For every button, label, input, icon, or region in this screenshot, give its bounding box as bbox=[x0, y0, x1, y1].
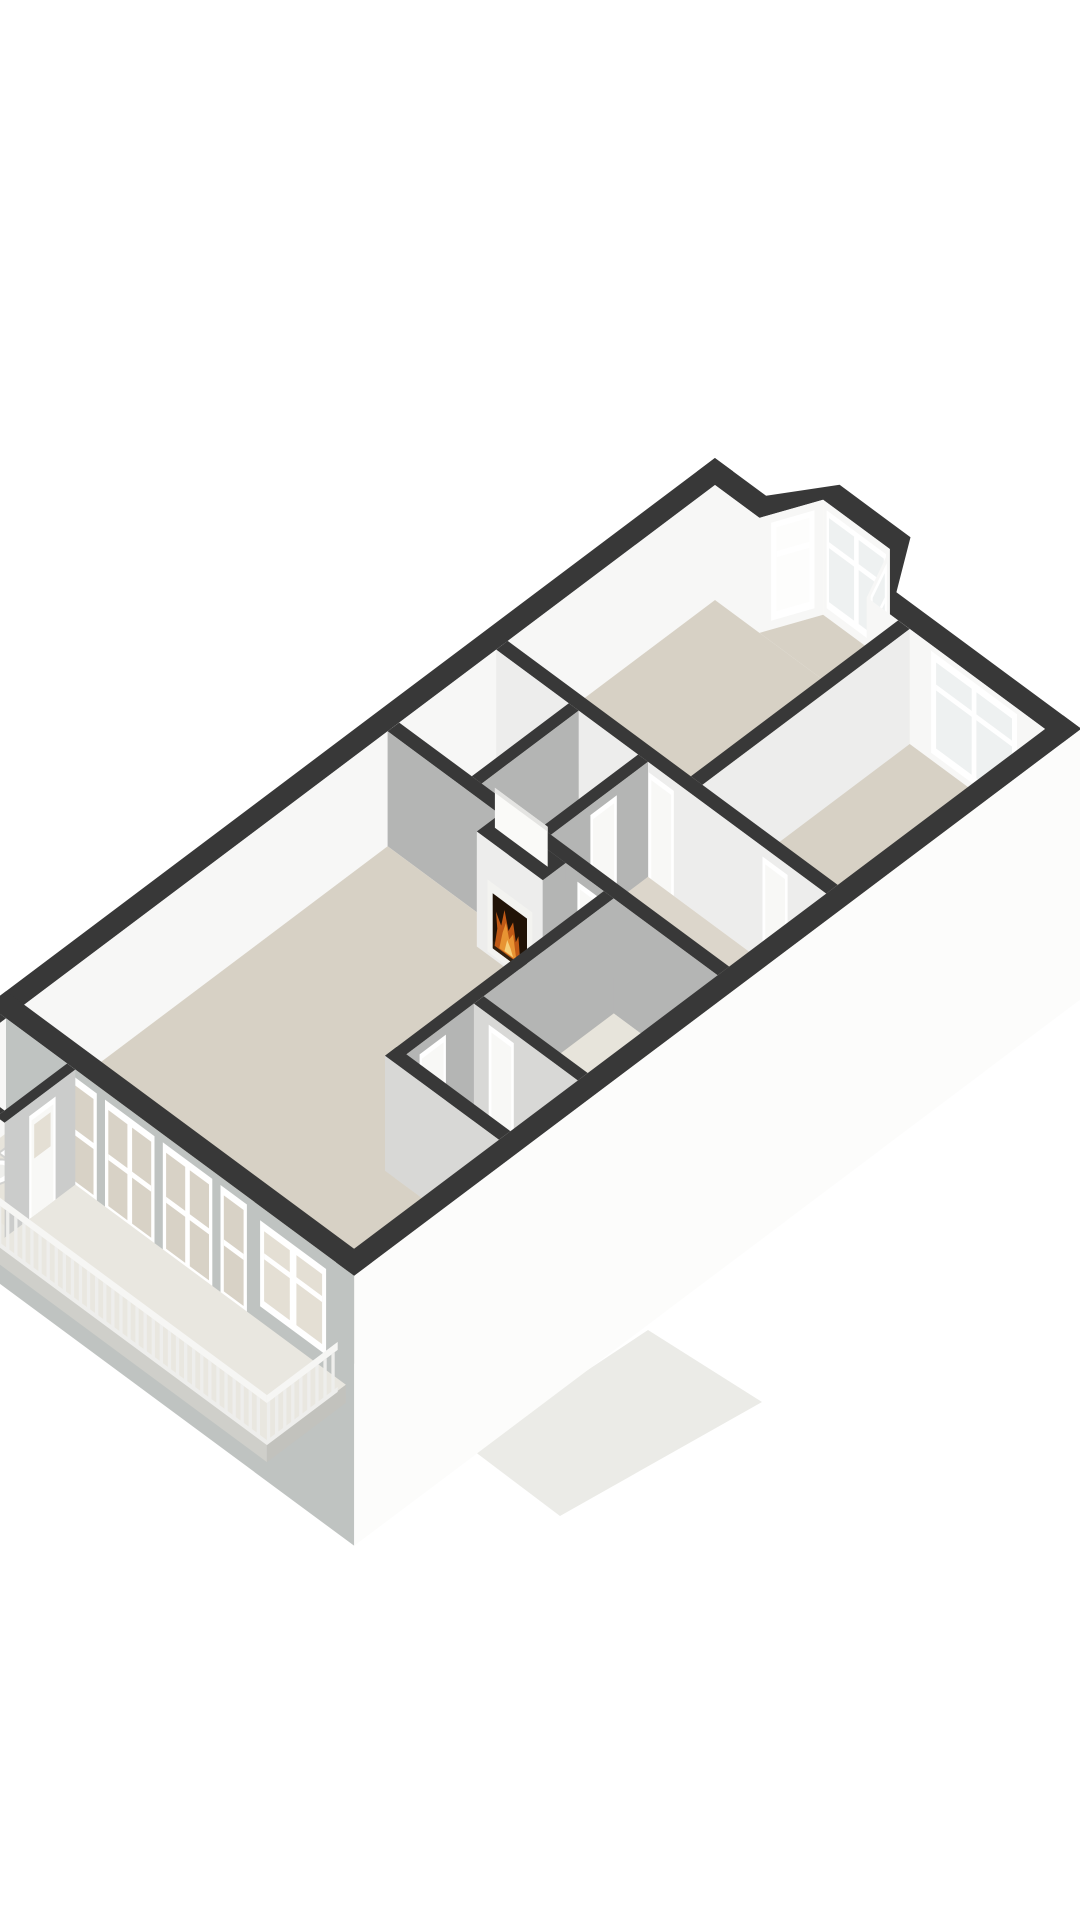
railing-se-bar bbox=[323, 1358, 326, 1399]
railing-sw-bar bbox=[176, 1336, 179, 1378]
railing-sw-bar bbox=[144, 1312, 147, 1354]
railing-se-bar bbox=[275, 1395, 278, 1437]
railing-sw-bar bbox=[103, 1282, 106, 1324]
railing-sw-bar bbox=[119, 1294, 122, 1335]
railing-sw-bar bbox=[79, 1264, 82, 1305]
floor-plan-page bbox=[0, 0, 1080, 1920]
railing-sw-bar bbox=[71, 1258, 74, 1300]
railing-sw-bar bbox=[168, 1330, 171, 1371]
railing-sw-bar bbox=[216, 1366, 219, 1408]
railing-sw-bar bbox=[14, 1216, 17, 1257]
railing-sw-bar bbox=[224, 1372, 227, 1413]
railing-sw-bar bbox=[22, 1222, 25, 1263]
railing-sw-bar bbox=[184, 1342, 187, 1384]
railing-sw-bar bbox=[241, 1384, 244, 1425]
railing-se-bar bbox=[299, 1376, 302, 1417]
railing-sw-bar bbox=[257, 1396, 260, 1438]
railing-sw-bar bbox=[135, 1306, 138, 1348]
railing-sw-bar bbox=[200, 1354, 203, 1395]
railing-se-bar bbox=[283, 1389, 286, 1431]
railing-sw-bar bbox=[0, 1204, 1, 1246]
railing-se-bar bbox=[267, 1401, 270, 1443]
railing-se-bar bbox=[315, 1364, 318, 1406]
railing-sw-bar bbox=[47, 1240, 50, 1281]
railing-sw-bar bbox=[249, 1390, 252, 1432]
floor-plan-3d bbox=[0, 0, 1080, 1920]
railing-sw-bar bbox=[160, 1324, 163, 1365]
railing-sw-bar bbox=[192, 1348, 195, 1389]
railing-se-bar bbox=[291, 1382, 294, 1424]
railing-sw-bar bbox=[63, 1252, 66, 1294]
railing-sw-bar bbox=[55, 1246, 58, 1287]
railing-se-bar bbox=[331, 1352, 334, 1394]
railing-sw-bar bbox=[87, 1270, 90, 1311]
railing-sw-bar bbox=[152, 1318, 155, 1359]
bay-window-left-glass bbox=[776, 518, 809, 612]
railing-sw-bar bbox=[95, 1276, 98, 1317]
railing-sw-bar bbox=[111, 1288, 114, 1330]
railing-sw-bar bbox=[38, 1234, 41, 1276]
bedroom1-door-leaf bbox=[651, 780, 671, 894]
railing-se-bar bbox=[307, 1370, 310, 1412]
railing-sw-bar bbox=[6, 1210, 9, 1251]
railing-sw-bar bbox=[208, 1360, 211, 1401]
railing-sw-bar bbox=[30, 1228, 33, 1270]
railing-sw-bar bbox=[233, 1378, 236, 1419]
railing-sw-bar bbox=[127, 1300, 130, 1341]
